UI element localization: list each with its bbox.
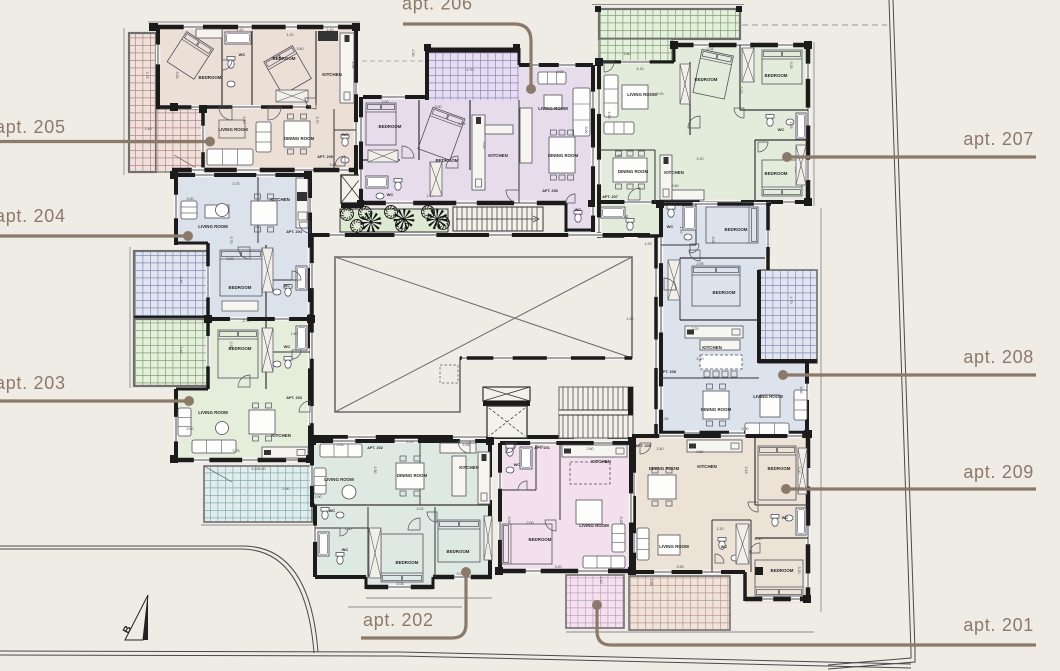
svg-text:KITCHEN: KITCHEN	[322, 72, 342, 77]
svg-text:3.75: 3.75	[243, 319, 250, 323]
svg-text:5.20: 5.20	[482, 142, 486, 149]
svg-text:LIVING ROOM: LIVING ROOM	[324, 477, 354, 482]
svg-text:WC: WC	[575, 207, 582, 212]
svg-text:BEDROOM: BEDROOM	[199, 75, 222, 80]
svg-text:KITCHEN: KITCHEN	[664, 170, 684, 175]
svg-text:3.00: 3.00	[382, 100, 389, 104]
svg-text:3.15: 3.15	[744, 467, 748, 474]
svg-text:2.45: 2.45	[599, 577, 603, 584]
svg-text:BEDROOM: BEDROOM	[229, 285, 252, 290]
svg-text:LIVING ROOM: LIVING ROOM	[579, 523, 609, 528]
svg-text:BEDROOM: BEDROOM	[725, 227, 748, 232]
svg-text:KITCHEN: KITCHEN	[271, 433, 291, 438]
svg-text:2.20: 2.20	[237, 28, 244, 32]
svg-text:3.00: 3.00	[435, 105, 442, 109]
svg-text:WC: WC	[721, 544, 728, 549]
svg-text:DINING ROOM: DINING ROOM	[701, 407, 732, 412]
svg-text:1.20: 1.20	[287, 33, 294, 37]
svg-text:3.00: 3.00	[227, 257, 234, 261]
svg-text:3.00: 3.00	[584, 127, 588, 134]
svg-text:3.55: 3.55	[677, 565, 684, 569]
svg-text:apt. 204: apt. 204	[0, 206, 66, 226]
svg-text:2.03: 2.03	[417, 507, 424, 511]
svg-text:3.70: 3.70	[739, 87, 743, 94]
svg-text:5.20: 5.20	[252, 467, 259, 471]
svg-text:3.80: 3.80	[624, 52, 631, 56]
svg-text:2.00: 2.00	[527, 521, 534, 525]
svg-text:2.30: 2.30	[351, 62, 355, 69]
svg-text:2.50: 2.50	[755, 537, 762, 541]
svg-text:3.40: 3.40	[179, 277, 183, 284]
svg-text:BEDROOM: BEDROOM	[768, 466, 791, 471]
svg-text:3.00: 3.00	[711, 237, 715, 244]
svg-text:3.40: 3.40	[179, 347, 183, 354]
svg-text:1.40: 1.40	[145, 127, 152, 131]
svg-text:1.40: 1.40	[679, 227, 683, 234]
svg-text:BEDROOM: BEDROOM	[273, 56, 296, 61]
svg-text:2.95: 2.95	[697, 262, 704, 266]
svg-text:DINING ROOM: DINING ROOM	[284, 136, 315, 141]
svg-text:BEDROOM: BEDROOM	[695, 77, 718, 82]
svg-text:WC: WC	[782, 515, 789, 520]
svg-text:3.00: 3.00	[557, 70, 564, 74]
svg-text:1.60: 1.60	[291, 332, 298, 336]
svg-text:2.60: 2.60	[672, 184, 679, 188]
svg-text:4.70: 4.70	[467, 68, 474, 72]
svg-text:WC: WC	[329, 509, 336, 513]
svg-text:1.20: 1.20	[717, 527, 724, 531]
svg-text:2.40: 2.40	[697, 357, 704, 361]
svg-text:LIVING ROOM: LIVING ROOM	[753, 394, 783, 399]
svg-text:BEDROOM: BEDROOM	[713, 290, 736, 295]
svg-text:APT. 205: APT. 205	[317, 155, 333, 159]
svg-text:DINING ROOM: DINING ROOM	[649, 466, 680, 471]
svg-text:3.10: 3.10	[407, 440, 414, 444]
svg-text:WC: WC	[239, 52, 246, 57]
svg-text:2.05: 2.05	[463, 443, 470, 447]
svg-text:3.20: 3.20	[789, 62, 793, 69]
svg-text:APT. 207: APT. 207	[602, 195, 618, 199]
svg-text:KITCHEN: KITCHEN	[697, 464, 717, 469]
svg-text:LIVING ROOM: LIVING ROOM	[659, 544, 689, 549]
svg-text:BEDROOM: BEDROOM	[765, 171, 788, 176]
svg-text:WC: WC	[514, 462, 521, 467]
svg-text:LIVING ROOM: LIVING ROOM	[218, 127, 248, 132]
svg-text:4.79: 4.79	[789, 297, 793, 304]
svg-text:3.20: 3.20	[697, 157, 704, 161]
svg-text:1.20: 1.20	[627, 317, 634, 321]
svg-text:WC: WC	[284, 344, 291, 349]
svg-text:APT. 209: APT. 209	[635, 444, 651, 448]
svg-text:apt. 206: apt. 206	[402, 0, 473, 14]
svg-text:1.29: 1.29	[645, 242, 652, 246]
svg-text:APT. 208: APT. 208	[660, 370, 676, 374]
svg-text:2.35: 2.35	[229, 342, 233, 349]
svg-text:1.50: 1.50	[373, 467, 377, 474]
svg-text:WC: WC	[778, 127, 785, 132]
svg-text:APT. 204: APT. 204	[286, 230, 303, 234]
svg-text:LIVING ROOM: LIVING ROOM	[627, 92, 657, 97]
svg-text:3.45: 3.45	[242, 117, 246, 124]
svg-text:3.75: 3.75	[233, 182, 240, 186]
svg-text:APT. 203: APT. 203	[286, 396, 302, 400]
svg-text:DINING ROOM: DINING ROOM	[618, 169, 649, 174]
svg-text:3.20: 3.20	[797, 567, 801, 574]
svg-text:apt. 208: apt. 208	[963, 347, 1034, 367]
svg-text:apt. 202: apt. 202	[363, 610, 434, 630]
svg-text:4.15: 4.15	[637, 67, 644, 71]
svg-text:BEDROOM: BEDROOM	[529, 537, 552, 542]
svg-text:3.20: 3.20	[797, 467, 801, 474]
svg-text:APT. 206: APT. 206	[542, 189, 558, 193]
svg-text:3.00: 3.00	[799, 387, 803, 394]
svg-text:2.55: 2.55	[649, 579, 653, 586]
svg-text:LIVING ROOM: LIVING ROOM	[198, 224, 228, 229]
svg-text:3.05: 3.05	[397, 582, 404, 586]
svg-text:WC: WC	[284, 283, 291, 288]
svg-text:apt. 205: apt. 205	[0, 117, 66, 137]
svg-text:WC: WC	[387, 192, 394, 197]
svg-text:APT. 202: APT. 202	[367, 446, 383, 450]
svg-text:2.65: 2.65	[337, 443, 344, 447]
svg-text:3.00: 3.00	[507, 517, 511, 524]
svg-text:apt. 209: apt. 209	[963, 462, 1034, 482]
svg-text:WC: WC	[342, 132, 349, 137]
svg-text:2.45: 2.45	[459, 122, 466, 126]
svg-text:3.75: 3.75	[145, 72, 149, 79]
svg-text:WC: WC	[342, 547, 349, 552]
svg-text:BEDROOM: BEDROOM	[396, 560, 419, 565]
svg-text:BEDROOM: BEDROOM	[765, 73, 788, 78]
svg-text:2.10: 2.10	[327, 28, 334, 32]
svg-text:3.20: 3.20	[619, 517, 623, 524]
svg-text:3.00: 3.00	[175, 72, 179, 79]
svg-text:LIVING ROOM: LIVING ROOM	[198, 410, 228, 415]
svg-text:2.60: 2.60	[697, 450, 704, 454]
svg-text:WC: WC	[667, 224, 674, 229]
svg-text:KITCHEN: KITCHEN	[459, 465, 479, 470]
svg-text:BEDROOM: BEDROOM	[447, 549, 470, 554]
svg-text:DINING ROOM: DINING ROOM	[397, 473, 428, 478]
svg-text:KITCHEN: KITCHEN	[488, 153, 508, 158]
svg-text:2.90: 2.90	[315, 495, 322, 499]
svg-text:apt. 203: apt. 203	[0, 373, 66, 393]
svg-text:5.70: 5.70	[229, 237, 233, 244]
svg-text:KITCHEN: KITCHEN	[591, 459, 611, 464]
svg-text:3.55: 3.55	[662, 417, 669, 421]
svg-text:1.53: 1.53	[789, 122, 793, 129]
svg-text:5.20: 5.20	[259, 467, 266, 471]
svg-text:apt. 201: apt. 201	[963, 615, 1034, 635]
svg-text:3.00: 3.00	[742, 427, 749, 431]
svg-text:3.00: 3.00	[187, 427, 194, 431]
svg-text:3.00: 3.00	[187, 197, 194, 201]
svg-text:2.60: 2.60	[587, 447, 594, 451]
svg-text:3.34: 3.34	[707, 47, 714, 51]
svg-text:KITCHEN: KITCHEN	[702, 345, 722, 350]
svg-text:3.40: 3.40	[297, 47, 304, 51]
svg-text:3.00: 3.00	[657, 92, 664, 96]
svg-text:BEDROOM: BEDROOM	[379, 124, 402, 129]
svg-text:LIVING ROOM: LIVING ROOM	[538, 106, 568, 111]
svg-text:DINING ROOM: DINING ROOM	[548, 153, 579, 158]
svg-text:3.20: 3.20	[692, 327, 699, 331]
svg-text:apt. 207: apt. 207	[963, 129, 1034, 149]
svg-text:2.40: 2.40	[657, 447, 664, 451]
svg-text:3.75: 3.75	[233, 449, 240, 453]
svg-text:2.50: 2.50	[411, 50, 415, 57]
svg-text:3.20: 3.20	[555, 565, 562, 569]
svg-text:2.03: 2.03	[537, 445, 544, 449]
svg-text:2.90: 2.90	[283, 487, 290, 491]
svg-text:1.29: 1.29	[615, 154, 622, 158]
svg-text:3.70: 3.70	[315, 117, 319, 124]
svg-text:KITCHEN: KITCHEN	[270, 197, 290, 202]
svg-text:BEDROOM: BEDROOM	[771, 568, 794, 573]
svg-text:4.00: 4.00	[607, 112, 611, 119]
